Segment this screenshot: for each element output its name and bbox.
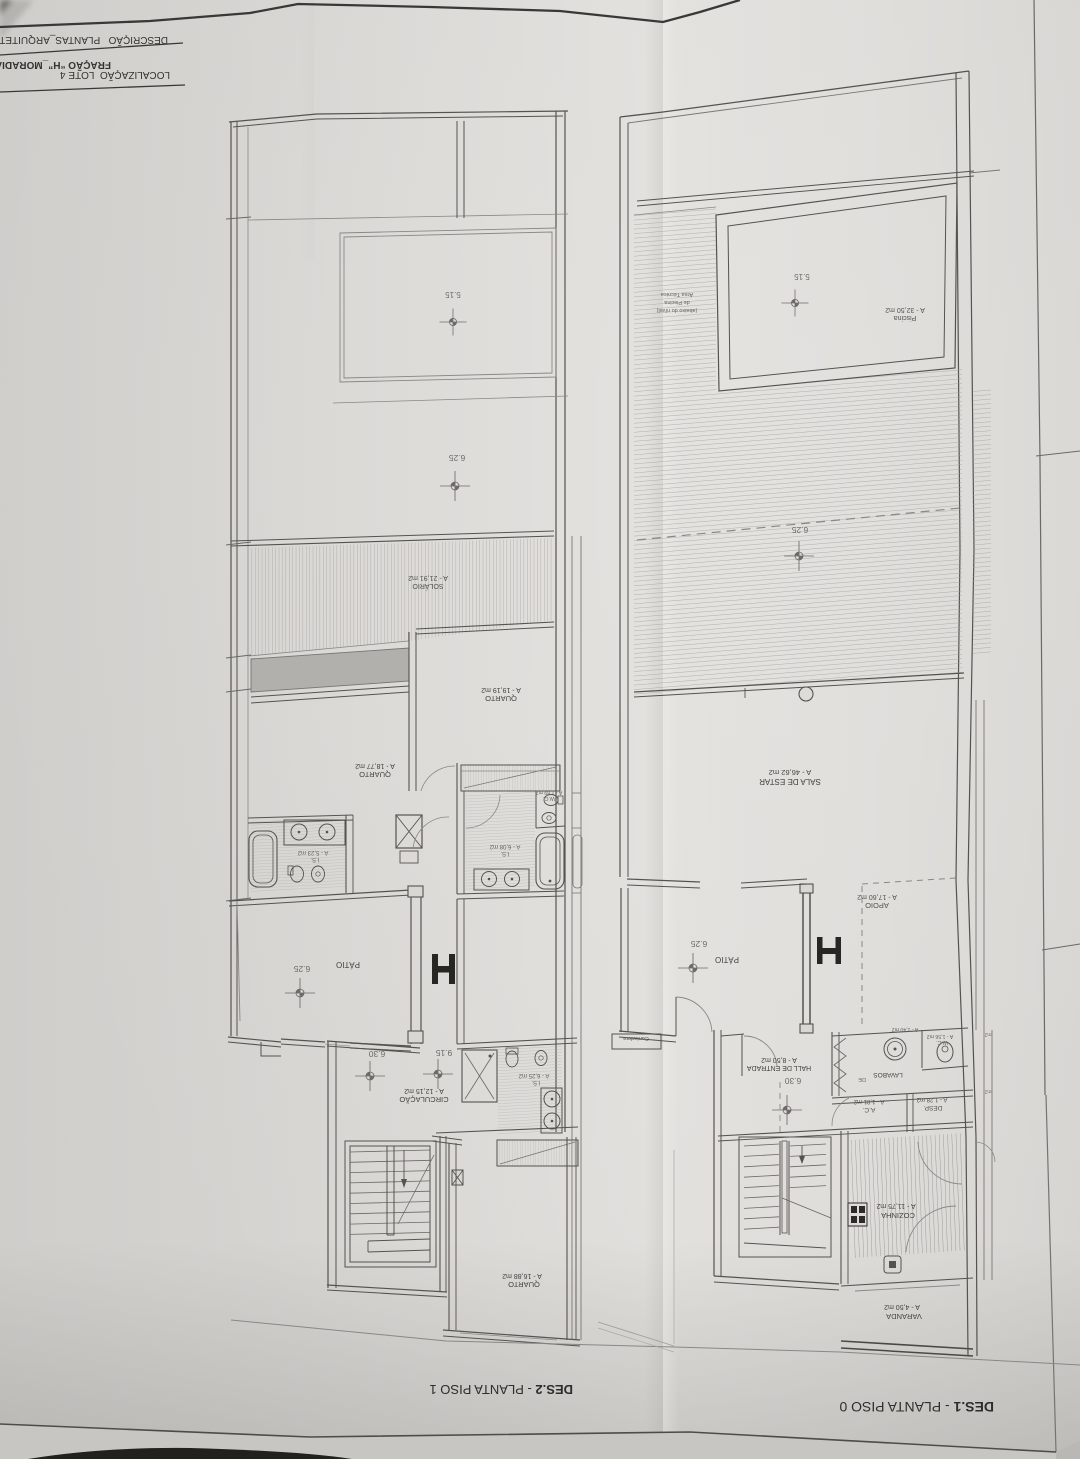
svg-text:m2: m2 [984,1088,991,1094]
svg-text:(abaixo do nível): (abaixo do nível) [657,307,698,313]
svg-text:A.C.: A.C. [862,1106,875,1113]
svg-text:SALA DE ESTAR: SALA DE ESTAR [759,777,821,786]
svg-text:A - 12,15 m2: A - 12,15 m2 [404,1087,444,1094]
svg-text:A - 8,50 m2: A - 8,50 m2 [761,1056,797,1063]
svg-text:de Piscina: de Piscina [663,299,689,305]
svg-text:A - 5,23 m2: A - 5,23 m2 [297,849,328,855]
svg-text:DES.2 - PLANTA PISO 1: DES.2 - PLANTA PISO 1 [429,1382,573,1397]
svg-text:A - 46,62 m2: A - 46,62 m2 [769,768,812,777]
svg-text:6.25: 6.25 [791,525,808,535]
svg-text:A - 16,88 m2: A - 16,88 m2 [502,1272,542,1279]
svg-text:6.25: 6.25 [293,964,310,974]
svg-text:QUARTO: QUARTO [508,1280,540,1289]
svg-text:SOLÁRIO: SOLÁRIO [412,582,444,591]
svg-text:LAVABOS: LAVABOS [873,1071,903,1078]
svg-text:I.S.: I.S. [310,856,319,862]
svg-text:HALL DE ENTRADA: HALL DE ENTRADA [747,1064,812,1071]
svg-text:COZINHA: COZINHA [881,1211,915,1220]
svg-text:DESP.: DESP. [923,1104,942,1111]
svg-text:I.S.: I.S. [500,850,509,856]
svg-text:A - 17,60 m2: A - 17,60 m2 [857,893,897,900]
svg-text:PÁTIO: PÁTIO [715,955,739,964]
svg-text:6.25: 6.25 [690,939,707,949]
svg-text:A - 1,81 m2: A - 1,81 m2 [853,1098,884,1104]
svg-text:A - 1,28 m2: A - 1,28 m2 [916,1096,947,1102]
svg-text:A - 19,19 m2: A - 19,19 m2 [481,686,521,693]
svg-text:6.30: 6.30 [368,1049,385,1059]
svg-text:A - 1,89 m2: A - 1,89 m2 [536,789,563,795]
svg-text:DES.1 - PLANTA PISO 0: DES.1 - PLANTA PISO 0 [839,1399,994,1415]
svg-text:I.S.: I.S. [531,1079,540,1085]
svg-text:5.15: 5.15 [445,290,461,299]
svg-text:Piscina: Piscina [894,314,917,321]
svg-text:VARANDA: VARANDA [886,1312,922,1321]
svg-text:Contadora: Contadora [622,1035,649,1041]
svg-text:DE: DE [858,1076,866,1082]
svg-text:A - 1,40 m2: A - 1,40 m2 [892,1026,919,1032]
svg-text:A - 21,91 m2: A - 21,91 m2 [408,574,448,581]
svg-text:A - 1,56 m2: A - 1,56 m2 [927,1033,954,1039]
svg-text:Área Técnica: Área Técnica [660,291,693,298]
svg-text:A - 6,25 m2: A - 6,25 m2 [518,1072,549,1078]
svg-text:A - 4,50 m2: A - 4,50 m2 [884,1303,920,1310]
svg-text:6.25: 6.25 [448,453,465,463]
svg-text:A - 6,08 m2: A - 6,08 m2 [489,843,520,849]
svg-text:PÁTIO: PÁTIO [336,960,360,969]
svg-text:9.15: 9.15 [435,1048,452,1058]
svg-text:A - 32,50 m2: A - 32,50 m2 [885,306,925,313]
svg-text:m2: m2 [984,1031,991,1037]
svg-text:APOIO: APOIO [865,901,889,910]
svg-text:A - 18,77 m2: A - 18,77 m2 [355,762,395,769]
svg-text:6.30: 6.30 [784,1076,801,1086]
svg-text:LOCALIZAÇÃO LOTE 4: LOCALIZAÇÃO LOTE 4 [60,69,170,82]
svg-text:A - 11,75 m2: A - 11,75 m2 [876,1202,915,1209]
svg-text:5.15: 5.15 [794,272,810,281]
svg-text:QUARTO: QUARTO [359,770,391,779]
svg-text:QUARTO: QUARTO [485,694,517,703]
svg-text:CIRCULAÇÃO: CIRCULAÇÃO [399,1095,448,1104]
